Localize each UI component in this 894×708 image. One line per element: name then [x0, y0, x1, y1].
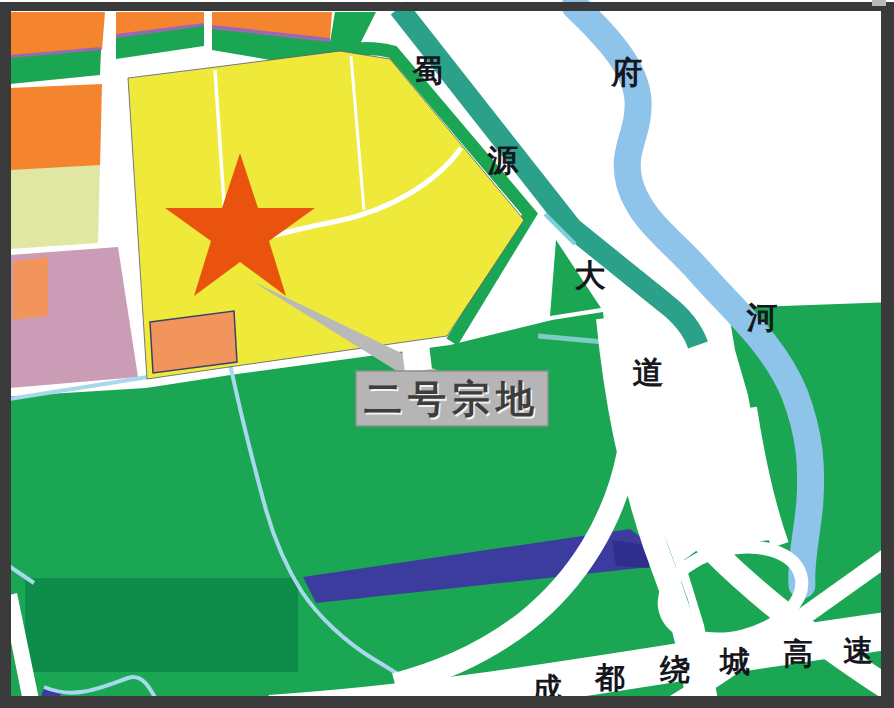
- pale-green-parcel: [10, 165, 100, 249]
- expwy-char-rao: 绕: [659, 653, 690, 686]
- expwy-char-du: 都: [594, 661, 625, 694]
- orange-parcel-4: [10, 84, 102, 173]
- expwy-char-cheng2: 城: [718, 645, 750, 678]
- expwy-char-su: 速: [843, 634, 874, 667]
- road-char-yuan: 源: [487, 143, 520, 178]
- road-char-shu: 蜀: [412, 53, 444, 88]
- road-char-da: 大: [575, 258, 606, 293]
- dark-green-rectangle: [25, 578, 298, 672]
- salmon-parcel: [150, 311, 237, 373]
- expwy-char-gao: 高: [783, 637, 813, 670]
- river-char-fu: 府: [611, 55, 643, 90]
- river-char-he: 河: [746, 300, 778, 335]
- road-char-dao: 道: [633, 355, 664, 390]
- white-building-mark: [402, 344, 432, 373]
- map-canvas: 二号宗地 二号宗地 蜀 源 大 道 府 河 成 都 绕 城 高 速: [0, 0, 894, 708]
- plot-label-text: 二号宗地: [364, 378, 540, 420]
- frame-corner-notch: [872, 0, 886, 6]
- orange-square-in-pink: [13, 257, 48, 320]
- location-map-image: 二号宗地 二号宗地 蜀 源 大 道 府 河 成 都 绕 城 高 速: [0, 0, 894, 708]
